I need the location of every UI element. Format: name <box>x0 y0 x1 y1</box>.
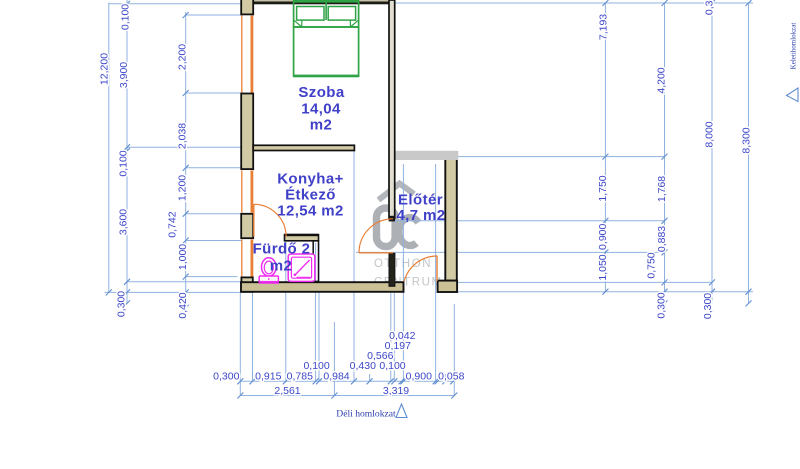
svg-text:0,300: 0,300 <box>656 292 668 318</box>
svg-text:Étkező: Étkező <box>285 187 336 204</box>
svg-text:0,300: 0,300 <box>213 371 239 383</box>
svg-text:m2: m2 <box>270 258 292 275</box>
svg-text:0,300: 0,300 <box>703 0 715 15</box>
svg-text:1,750: 1,750 <box>597 175 609 201</box>
svg-text:1,050: 1,050 <box>597 254 609 280</box>
svg-text:Keletihomlokzat: Keletihomlokzat <box>789 23 797 70</box>
svg-text:0,750: 0,750 <box>646 252 658 278</box>
svg-text:4,200: 4,200 <box>655 67 667 93</box>
svg-text:m2: m2 <box>310 117 332 134</box>
svg-text:2,561: 2,561 <box>274 385 300 397</box>
svg-text:0,100: 0,100 <box>117 150 129 176</box>
svg-text:0,420: 0,420 <box>177 292 189 318</box>
svg-text:0,883: 0,883 <box>656 226 668 252</box>
svg-text:Déli homlokzat: Déli homlokzat <box>336 409 396 420</box>
svg-text:Fürdő 2: Fürdő 2 <box>253 240 311 257</box>
svg-text:8,000: 8,000 <box>703 121 715 147</box>
svg-text:3,319: 3,319 <box>383 385 409 397</box>
svg-text:0,900: 0,900 <box>597 224 609 250</box>
svg-text:3,900: 3,900 <box>118 62 130 88</box>
svg-text:2,038: 2,038 <box>176 123 188 149</box>
svg-text:0,900: 0,900 <box>406 371 432 383</box>
svg-text:1,000: 1,000 <box>177 244 189 270</box>
svg-text:8,300: 8,300 <box>740 127 752 153</box>
svg-text:0,100: 0,100 <box>120 4 132 30</box>
svg-text:0,058: 0,058 <box>438 371 464 383</box>
svg-text:Szoba: Szoba <box>298 84 344 101</box>
svg-text:12,54 m2: 12,54 m2 <box>277 203 344 220</box>
svg-text:1,768: 1,768 <box>656 176 668 202</box>
svg-text:12,200: 12,200 <box>98 53 110 85</box>
svg-text:0,742: 0,742 <box>166 211 178 237</box>
svg-text:0,300: 0,300 <box>702 293 714 319</box>
svg-text:Konyha+: Konyha+ <box>277 170 344 187</box>
svg-text:2,200: 2,200 <box>176 44 188 70</box>
svg-text:4,7 m2: 4,7 m2 <box>396 207 445 224</box>
svg-text:0,785: 0,785 <box>287 371 313 383</box>
svg-text:0,042: 0,042 <box>389 330 415 342</box>
svg-text:3,600: 3,600 <box>117 209 129 235</box>
svg-text:0,915: 0,915 <box>255 371 281 383</box>
svg-text:0,300: 0,300 <box>115 291 127 317</box>
svg-text:7,193: 7,193 <box>597 14 609 40</box>
svg-text:Előtér: Előtér <box>398 191 443 208</box>
svg-text:14,04: 14,04 <box>301 100 341 117</box>
svg-text:1,200: 1,200 <box>176 175 188 201</box>
svg-text:0,100: 0,100 <box>379 360 405 372</box>
svg-text:0,984: 0,984 <box>323 371 349 383</box>
